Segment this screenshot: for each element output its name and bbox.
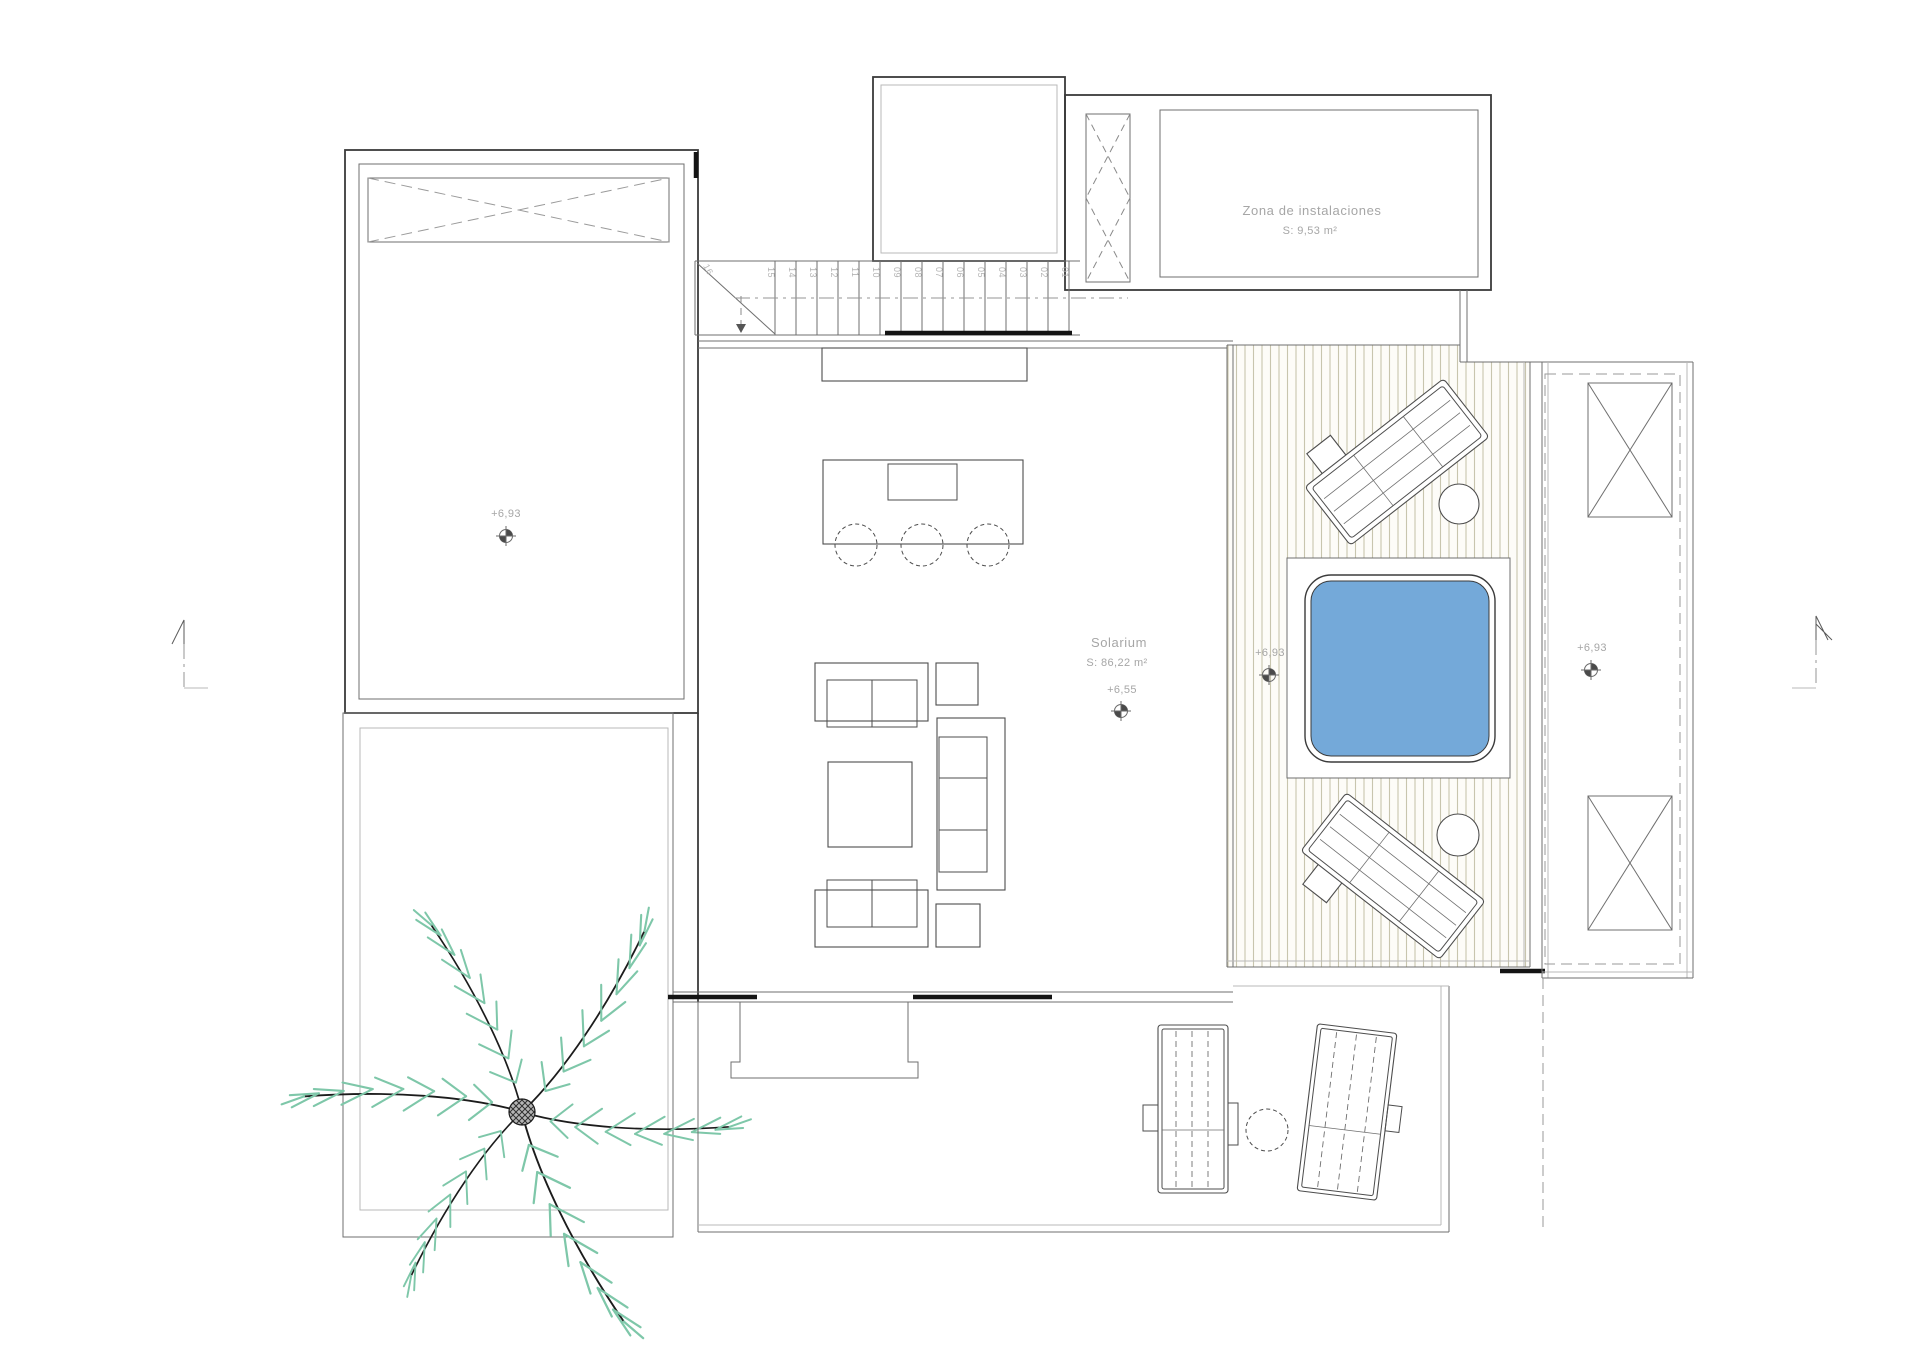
level-label-left-roof: +6,93 bbox=[491, 508, 521, 520]
sun-lounger-terrace-right bbox=[1297, 1024, 1411, 1202]
level-label-solarium: +6,55 bbox=[1107, 684, 1137, 696]
skylight-box-bottom bbox=[1588, 796, 1672, 930]
sofa-top bbox=[815, 663, 928, 727]
pool-platform bbox=[1287, 558, 1510, 778]
stair-walkline-arrow bbox=[736, 324, 746, 333]
sun-lounger-terrace-left bbox=[1143, 1025, 1238, 1193]
palm-tree bbox=[282, 898, 751, 1351]
stair-step-number: 13 bbox=[808, 267, 818, 278]
side-table-round-terrace bbox=[1246, 1109, 1288, 1151]
ventilation-shaft bbox=[1086, 114, 1130, 282]
floor-plan-canvas: +6,93 Zona de instalaciones S: 9,53 m bbox=[0, 0, 1920, 1364]
courtyard bbox=[343, 713, 673, 1237]
level-marker-right-roof bbox=[1581, 660, 1601, 680]
right-roof-room: +6,93 bbox=[1542, 362, 1693, 978]
solarium-area: Solarium S: 86,22 m² +6,55 bbox=[668, 348, 1233, 1078]
room-area-instalaciones: S: 9,53 m² bbox=[1283, 225, 1338, 237]
bar-counter bbox=[823, 460, 1023, 566]
stair-step-number: 06 bbox=[955, 267, 965, 278]
room-label-solarium: Solarium bbox=[1091, 635, 1147, 650]
room-area-solarium: S: 86,22 m² bbox=[1086, 657, 1147, 669]
stair-step-number: 02 bbox=[1039, 267, 1049, 278]
section-marker-left bbox=[172, 620, 208, 688]
planter bbox=[731, 1002, 918, 1078]
staircase: 01020304050607080910111213141516 bbox=[695, 261, 1233, 348]
level-label-deck: +6,93 bbox=[1255, 647, 1285, 659]
top-left-roof-room: +6,93 bbox=[345, 150, 698, 713]
stair-void bbox=[873, 77, 1065, 261]
stair-step-number: 08 bbox=[913, 267, 923, 278]
side-table-top bbox=[936, 663, 978, 705]
skylight-hatch-strip bbox=[368, 178, 669, 242]
skylight-box-top bbox=[1588, 383, 1672, 517]
palm-trunk bbox=[509, 1099, 535, 1125]
stair-step-numbers: 01020304050607080910111213141516 bbox=[701, 262, 1070, 278]
stair-step-number: 10 bbox=[871, 267, 881, 278]
stair-step-number: 16 bbox=[701, 262, 715, 276]
side-table-bottom bbox=[936, 904, 980, 947]
sideboard bbox=[822, 348, 1027, 381]
stair-step-number: 14 bbox=[787, 267, 797, 278]
plunge-pool bbox=[1311, 581, 1489, 756]
level-label-right-roof: +6,93 bbox=[1577, 642, 1607, 654]
stair-step-number: 15 bbox=[766, 267, 776, 278]
lounge-seating-group bbox=[815, 663, 1005, 947]
stair-step-number: 05 bbox=[976, 267, 986, 278]
floor-plan-svg: +6,93 Zona de instalaciones S: 9,53 m bbox=[0, 0, 1920, 1364]
side-table-round-deck-bottom bbox=[1437, 814, 1479, 856]
stair-step-number: 01 bbox=[1060, 267, 1070, 278]
wood-deck: +6,93 bbox=[1227, 290, 1693, 979]
installations-room: Zona de instalaciones S: 9,53 m² bbox=[1065, 95, 1491, 290]
sofa-bottom bbox=[815, 880, 928, 947]
room-label-instalaciones: Zona de instalaciones bbox=[1242, 203, 1381, 218]
solarium-labels: Solarium S: 86,22 m² +6,55 bbox=[1086, 635, 1147, 721]
section-marker-right bbox=[1792, 616, 1832, 688]
stair-step-number: 11 bbox=[850, 267, 860, 277]
bottom-terrace bbox=[698, 978, 1543, 1232]
sofa-right bbox=[937, 718, 1005, 890]
stair-step-number: 07 bbox=[934, 267, 944, 278]
level-marker-solarium bbox=[1111, 701, 1131, 721]
coffee-table bbox=[828, 762, 912, 847]
stair-step-number: 04 bbox=[997, 267, 1007, 278]
stair-step-number: 03 bbox=[1018, 267, 1028, 278]
side-table-round-deck-top bbox=[1439, 484, 1479, 524]
roof-overhang-dashed bbox=[1545, 374, 1680, 964]
stair-step-number: 12 bbox=[829, 267, 839, 278]
stair-step-number: 09 bbox=[892, 267, 902, 278]
level-marker-left-roof bbox=[496, 526, 516, 546]
